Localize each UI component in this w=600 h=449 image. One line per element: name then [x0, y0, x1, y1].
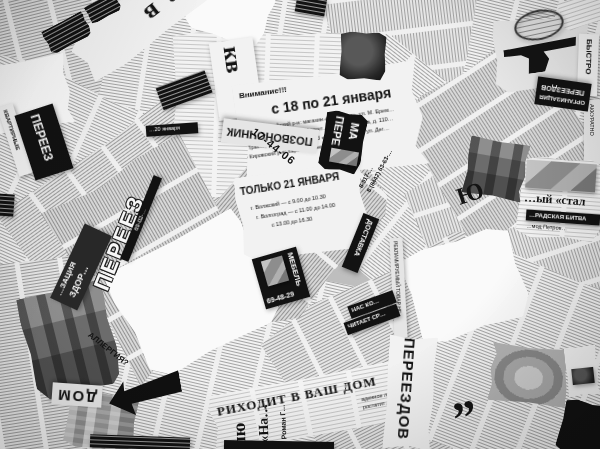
bitva-text: …РАДСКАЯ БИТВА [529, 212, 587, 222]
quote-text: ” [449, 390, 483, 446]
kv-headline: кв [218, 45, 247, 75]
bottom-black-strip [90, 434, 190, 449]
newspaper-collage-photo: осква вквКВАРТИРНЫЕПЕРЕЕЗВнимание!!!с 18… [0, 0, 600, 449]
akkuratno-text: АККУРАТНО [588, 104, 594, 136]
small-ad-photo [571, 367, 595, 385]
petrov-text: …мод Петров… [526, 223, 567, 232]
stalingrad-photo [525, 160, 597, 193]
face-photo-inverted [487, 342, 571, 408]
soldier-photo [339, 31, 387, 81]
black-box [0, 193, 15, 216]
pere-text: ПЕРЕ [328, 115, 345, 147]
jan20-text: …20 января [149, 125, 180, 133]
stal-headline-text: …ый «стал [524, 191, 586, 208]
pereezdov-big-text: ПЕРЕЕЗДОВ [395, 337, 418, 440]
pereezd-banner-text: ПЕРЕЕЗ [27, 113, 54, 163]
schedule-line: с 13.00 до 16.30 [271, 216, 313, 228]
bottom-black-strip [224, 440, 334, 449]
ma-text: МА [346, 122, 361, 141]
bystro-text: БЫСТРО [583, 39, 593, 75]
dom-text: ДОМ [56, 386, 98, 405]
dom-inverted-text: ДОМ [51, 382, 102, 407]
